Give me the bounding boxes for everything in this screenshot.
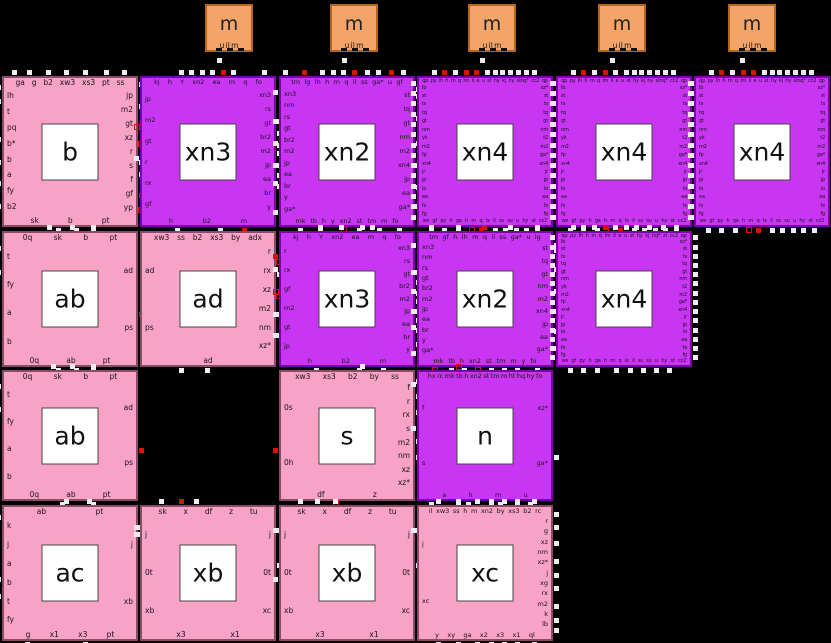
tile-m1[interactable]: uilmm — [205, 4, 253, 52]
edge-label: m — [590, 79, 595, 84]
edge-label: r — [145, 159, 148, 166]
marker-white — [411, 325, 416, 330]
tile-s[interactable]: xw3xs3b2byss0s0hfrrxsm2nmxzxz*dfzs — [279, 370, 415, 501]
edge-label: rx — [403, 411, 410, 419]
marker-white — [688, 132, 693, 137]
edge-label: f — [130, 176, 133, 184]
edge-label: fy — [7, 616, 14, 624]
marker-red — [751, 70, 756, 75]
edge-label: br2 — [399, 283, 410, 290]
edge-label: lb — [542, 621, 548, 628]
marker-white — [333, 499, 338, 504]
edge-label: py — [579, 219, 585, 224]
edge-label: pt — [110, 234, 118, 242]
tile-xc[interactable]: ilxw3sshmxn2byxs3b2rcjxcrgxznmxz*jxgrxm2… — [417, 505, 553, 641]
marker-white — [159, 499, 164, 504]
edge-label: ss — [361, 79, 368, 86]
edge-label: x1 — [230, 631, 239, 639]
edge-label: 0t — [263, 569, 271, 577]
edge-label: hy — [647, 79, 653, 84]
marker-white — [0, 407, 1, 412]
edge-label: xb — [284, 607, 293, 615]
edge-label: kj — [154, 79, 160, 86]
marker-white — [64, 499, 69, 504]
edge-label: 0s — [284, 404, 293, 412]
edge-label: xlnq* — [656, 79, 668, 84]
edge-label: lo — [683, 330, 687, 335]
edge-label: cc2 — [531, 79, 539, 84]
edge-label: ws — [562, 359, 568, 364]
marker-white — [571, 70, 576, 75]
edge-label: xs3 — [82, 79, 95, 87]
edge-label: lo — [561, 187, 565, 192]
edge-label: ga* — [540, 153, 548, 158]
edge-left-labels: lhtpqb*bafyb2 — [7, 88, 17, 214]
edge-label: il — [353, 79, 357, 86]
edge-label: h — [463, 508, 467, 515]
edge-label: f — [422, 405, 424, 412]
edge-label: tm — [367, 218, 376, 225]
marker-white — [273, 528, 278, 533]
tile-m4[interactable]: uilmm — [598, 4, 646, 52]
edge-label: jp — [284, 160, 290, 167]
edge-label: il — [749, 79, 751, 84]
edge-label: ea — [699, 195, 705, 200]
edge-top-labels: skxdfztu — [150, 508, 266, 516]
edge-label: ga — [456, 219, 462, 224]
marker-white — [51, 364, 56, 369]
marker-white — [273, 333, 278, 338]
edge-label: xn3 — [259, 92, 271, 99]
tick-black — [609, 48, 615, 51]
edge-left-labels: jpm2gtrrxgf — [145, 88, 155, 214]
marker-white — [273, 181, 278, 186]
edge-label: xn2 — [469, 358, 481, 365]
edge-label: m2 — [284, 148, 294, 155]
edge-label: r — [407, 398, 410, 406]
edge-label: m — [471, 219, 476, 224]
marker-white — [667, 368, 672, 373]
edge-label: q — [483, 234, 487, 241]
edge-label: ga* — [399, 204, 410, 211]
edge-label: gt — [284, 324, 291, 331]
edge-label: jp — [544, 178, 548, 183]
edge-label: tq — [682, 111, 687, 116]
tile-m3[interactable]: uilmm — [468, 4, 516, 52]
marker-red — [482, 225, 487, 230]
edge-top-labels: 0qskbpt — [12, 373, 128, 381]
marker-white — [693, 328, 698, 333]
marker-white — [535, 225, 540, 230]
edge-label: b2 — [7, 203, 17, 211]
edge-label: yk — [561, 136, 566, 141]
edge-label: m — [610, 219, 615, 224]
edge-label: py — [570, 79, 576, 84]
marker-white — [453, 70, 458, 75]
tile-center-box: s — [319, 407, 376, 464]
edge-label: q — [243, 79, 247, 86]
marker-red — [389, 70, 394, 75]
edge-label: jp — [404, 308, 410, 315]
edge-label: m — [451, 79, 456, 84]
edge-label: ea — [540, 334, 548, 341]
edge-label: g — [26, 631, 31, 639]
edge-label: 0h — [284, 459, 294, 467]
edge-label: by — [370, 373, 379, 381]
marker-white — [273, 312, 278, 317]
edge-label: 0q — [30, 357, 40, 365]
tile-center-label: xc — [471, 561, 499, 586]
edge-label: xs3 — [323, 373, 336, 381]
edge-label: h — [469, 492, 473, 499]
marker-white — [780, 228, 785, 233]
marker-white — [411, 309, 416, 314]
edge-label: xg — [540, 580, 548, 587]
tile-xb-1[interactable]: skxdfztuj0txbj0txcx3x1xb — [140, 505, 276, 641]
edge-label: b2 — [43, 79, 53, 87]
edge-label: jp — [404, 176, 410, 183]
marker-white — [592, 70, 597, 75]
tile-m2[interactable]: uilmm — [330, 4, 378, 52]
marker-white — [262, 70, 267, 75]
edge-bottom-labels: 0qabpt — [16, 491, 124, 499]
edge-label: st — [764, 79, 768, 84]
edge-label: st — [808, 219, 812, 224]
edge-bottom-labels: ad — [154, 357, 262, 365]
tile-xn4-2[interactable]: qppylhhmqlmileusthykjhyxlnq*cc2qplbsttst… — [556, 76, 692, 227]
edge-label: tq — [403, 106, 410, 113]
edge-label: gt — [561, 270, 566, 275]
edge-label: m2 — [679, 145, 687, 150]
edge-label: ps — [145, 324, 154, 332]
edge-label: y — [267, 204, 271, 211]
edge-label: x1 — [50, 631, 59, 639]
edge-label: tm — [291, 79, 300, 86]
marker-white — [671, 70, 676, 75]
tile-center-label: ab — [54, 423, 85, 448]
edge-label: jr — [699, 170, 702, 175]
marker-white — [0, 246, 1, 251]
edge-label: fg — [422, 212, 427, 217]
edge-label: lx — [763, 219, 767, 224]
edge-label: u — [655, 359, 658, 364]
marker-white — [432, 70, 437, 75]
edge-label: x3 — [496, 632, 504, 639]
edge-bottom-labels: wsgfpyhgahmqlxilsssuuhystcc2 — [560, 219, 688, 224]
tile-ad[interactable]: xw3ssb2xs3byadxadpsrrxxzm2nmxz*adad — [140, 231, 276, 367]
marker-white — [614, 368, 619, 373]
edge-label: m2 — [284, 305, 294, 312]
edge-right-labels: adps — [124, 381, 133, 490]
marker-white — [647, 70, 652, 75]
edge-label: h — [584, 79, 587, 84]
marker-red — [273, 448, 278, 453]
edge-label: j — [131, 541, 133, 549]
marker-red — [464, 70, 469, 75]
edge-label: s — [129, 162, 133, 170]
edge-label: h — [464, 373, 468, 380]
edge-label: fx — [422, 204, 426, 209]
tile-xn4-4[interactable]: qppylhhmqlmileusthykjhq*xlcc2qplbsttstqg… — [556, 231, 692, 367]
edge-label: il — [632, 359, 634, 364]
edge-label: xz — [402, 466, 410, 474]
marker-white — [592, 225, 597, 230]
edge-label: u — [655, 219, 658, 224]
tile-xn2-2[interactable]: tmgfhlhmqilssga*ulgxn3nmrsgtbr2m2jpeabry… — [417, 231, 553, 367]
edge-label: ga* — [284, 206, 295, 213]
edge-top-labels: qppylhhmqlmileusthykjhyxlnq*cc2qp — [421, 79, 549, 84]
edge-label: ab — [66, 357, 75, 365]
edge-label: nm — [540, 128, 548, 133]
marker-white — [411, 132, 416, 137]
edge-label: hy — [633, 79, 639, 84]
marker-white — [693, 263, 698, 268]
edge-label: ga — [595, 219, 601, 224]
marker-white — [0, 384, 1, 389]
edge-label: gt — [820, 119, 825, 124]
edge-label: xn4 — [699, 162, 708, 167]
edge-label: br — [403, 334, 410, 341]
edge-label: jr — [561, 315, 564, 320]
marker-white — [411, 243, 416, 248]
edge-label: pt — [107, 631, 115, 639]
edge-label: ga — [463, 632, 471, 639]
marker-white — [200, 70, 205, 75]
edge-label: k — [544, 611, 548, 618]
edge-label: ga* — [537, 346, 548, 353]
edge-label: gt — [145, 138, 152, 145]
edge-label: r — [545, 518, 548, 525]
marker-white — [554, 525, 559, 530]
tick-black — [739, 48, 745, 51]
edge-label: rs — [265, 106, 271, 113]
marker-white — [550, 235, 555, 240]
marker-white — [663, 70, 668, 75]
edge-label: m — [610, 359, 615, 364]
edge-label: a — [7, 309, 12, 317]
marker-red — [741, 70, 746, 75]
edge-label: lm — [602, 79, 608, 84]
marker-white — [411, 270, 416, 275]
edge-label: gt — [682, 270, 687, 275]
marker-white — [688, 215, 693, 220]
edge-label: il — [613, 234, 615, 239]
tile-m5[interactable]: uilmm — [728, 4, 776, 52]
marker-red — [474, 70, 479, 75]
marker-white — [550, 309, 555, 314]
marker-white — [532, 499, 537, 504]
edge-label: xw3 — [436, 508, 449, 515]
edge-label: m2 — [699, 145, 707, 150]
edge-label: u — [759, 79, 762, 84]
edge-label: ea — [213, 79, 221, 86]
edge-label: j — [145, 531, 147, 539]
edge-label: jp — [126, 92, 133, 100]
edge-label: xn4 — [678, 308, 687, 313]
marker-white — [550, 291, 555, 296]
tile-ab-1[interactable]: 0qskbpttfyabadps0qabptab — [2, 231, 138, 367]
tile-center-box: ab — [42, 271, 99, 328]
marker-white — [411, 112, 416, 117]
edge-label: xn3 — [398, 245, 410, 252]
edge-label: jp — [561, 323, 565, 328]
edge-label: h — [465, 219, 468, 224]
tile-xn4-3[interactable]: qppylhhmqlmileusthykjhyxlnq*cc2qplbsttst… — [694, 76, 830, 227]
tile-xn3-2[interactable]: kjhYxn2eamqforrxgfm2gtjpxn3rsgtbr2m2jpea… — [279, 231, 415, 367]
edge-label: jp — [683, 178, 687, 183]
marker-white — [688, 122, 693, 127]
marker-white — [341, 70, 346, 75]
marker-white — [0, 270, 1, 275]
edge-label: xn2 — [192, 79, 204, 86]
edge-label: mk — [445, 373, 455, 380]
tick-black — [761, 48, 767, 51]
marker-white — [342, 58, 347, 63]
edge-label: rc — [437, 373, 443, 380]
edge-label: q — [458, 79, 461, 84]
edge-label: tu — [389, 508, 397, 516]
marker-white — [104, 70, 109, 75]
edge-label: b — [83, 373, 88, 381]
edge-label: xw3 — [295, 373, 310, 381]
edge-label: x1 — [513, 632, 521, 639]
edge-top-labels: qppylhhmqlmileusthykjhyxlnq*cc2qp — [560, 79, 688, 84]
marker-white — [740, 58, 745, 63]
marker-white — [489, 499, 494, 504]
edge-label: gt — [264, 120, 271, 127]
edge-label: ea — [542, 195, 548, 200]
marker-white — [595, 368, 600, 373]
edge-label: by — [497, 508, 505, 515]
edge-label: br2 — [260, 134, 271, 141]
edge-label: lh — [579, 234, 583, 239]
edge-bottom-labels: mktbhyxn2sttmmfo — [293, 218, 401, 225]
tile-center-label: b — [62, 139, 78, 164]
edge-label: e — [753, 79, 756, 84]
marker-white — [194, 499, 199, 504]
edge-label: jp — [683, 323, 687, 328]
edge-bottom-labels: wsgfpyhgahmqlxilsssuuhystcc2 — [421, 219, 549, 224]
marker-white — [411, 81, 416, 86]
edge-label: fo — [392, 218, 398, 225]
marker-white — [0, 515, 1, 520]
edge-label: ga* — [422, 347, 433, 354]
marker-white — [475, 499, 480, 504]
edge-label: r — [130, 148, 133, 156]
edge-label: xs3 — [210, 234, 223, 242]
edge-label: x3 — [176, 631, 185, 639]
edge-label: h — [449, 219, 452, 224]
tile-center-label: xn2 — [462, 287, 509, 312]
marker-white — [554, 559, 559, 564]
marker-white — [554, 541, 559, 546]
tile-xn4-1[interactable]: qppylhhmqlmileusthykjhyxlnq*cc2qplbsttst… — [417, 76, 553, 227]
marker-white — [791, 228, 796, 233]
tile-n[interactable]: hxrcmktbhxn2sttmmhthqhyfofsxz*ga*ahmun — [417, 370, 553, 501]
marker-white — [568, 368, 573, 373]
edge-label: m — [229, 79, 235, 86]
marker-white — [639, 70, 644, 75]
edge-label: gf — [432, 219, 437, 224]
tile-center-label: m — [220, 13, 239, 35]
edge-label: py — [579, 359, 585, 364]
edge-right-labels: jxb — [124, 516, 133, 630]
marker-white — [550, 143, 555, 148]
marker-white — [273, 210, 278, 215]
edge-label: e — [476, 79, 479, 84]
edge-label: df — [317, 491, 324, 499]
edge-label: il — [770, 219, 772, 224]
edge-top-labels: ilxw3sshmxn2byxs3b2rc — [427, 508, 543, 515]
edge-label: m2 — [538, 296, 548, 303]
marker-white — [709, 70, 714, 75]
marker-white — [550, 112, 555, 117]
edge-label: m — [471, 508, 477, 515]
marker-white — [688, 184, 693, 189]
tile-center-label: m — [613, 13, 632, 35]
marker-white — [688, 194, 693, 199]
edge-label: j — [546, 570, 548, 577]
edge-label: xn2 — [340, 218, 352, 225]
edge-label: kj — [293, 234, 299, 241]
edge-label: b — [7, 579, 12, 587]
edge-label: lo — [821, 187, 825, 192]
marker-red-open — [134, 124, 140, 130]
edge-label: ws — [700, 219, 706, 224]
tile-ab-2[interactable]: 0qskbpttfyabadps0qabptab — [2, 370, 138, 501]
edge-label: ea — [402, 190, 410, 197]
edge-label: hx — [428, 373, 436, 380]
edge-label: sk — [31, 217, 39, 225]
marker-white — [122, 70, 127, 75]
edge-label: ss — [638, 219, 643, 224]
edge-label: ps — [124, 459, 133, 467]
marker-white — [550, 328, 555, 333]
edge-label: ga* — [817, 153, 825, 158]
tile-xn3-1[interactable]: kjhYxn2eamqfojpm2gtrrxgfxn3rsgtbr2m2jpea… — [140, 76, 276, 227]
edge-label: st — [630, 234, 634, 239]
marker-white — [46, 70, 51, 75]
tile-ac[interactable]: abptkjabtfyjxbgx1x3ptac — [2, 505, 138, 641]
edge-label: lo — [422, 187, 426, 192]
edge-label: br — [284, 183, 291, 190]
edge-label: xn3 — [284, 91, 296, 98]
edge-label: ea — [681, 195, 687, 200]
tile-xb-2[interactable]: skxdfztuj0txbj0txcx3x1xb — [279, 505, 415, 641]
edge-left-labels: xn3nmrsgtbr2m2jpeabryga* — [284, 88, 296, 214]
edge-label: nm — [538, 283, 548, 290]
edge-top-labels: tmlglhhmqilssga*ugf — [289, 79, 405, 86]
marker-white — [647, 225, 652, 230]
marker-white — [508, 225, 513, 230]
marker-white — [801, 70, 806, 75]
tile-b[interactable]: gagb2xw3xs3ptsslhtpqb*bafyb2jpm2gtxzrsfg… — [2, 76, 138, 227]
edge-label: adx — [248, 234, 262, 242]
marker-white — [550, 215, 555, 220]
edge-label: hy — [785, 79, 791, 84]
edge-label: ss — [499, 219, 504, 224]
edge-label: u — [388, 79, 392, 86]
edge-label: t — [7, 598, 10, 606]
edge-left-labels: 0s0h — [284, 381, 294, 490]
edge-label: py — [440, 219, 446, 224]
edge-label: ga* — [679, 153, 687, 158]
marker-red — [603, 225, 608, 230]
tile-center-box: xn4 — [596, 123, 653, 180]
tile-center-box: ad — [180, 271, 237, 328]
edge-label: q — [344, 79, 348, 86]
tile-xn2-1[interactable]: tmlglhhmqilssga*ugfxn3nmrsgtbr2m2jpeabry… — [279, 76, 415, 227]
